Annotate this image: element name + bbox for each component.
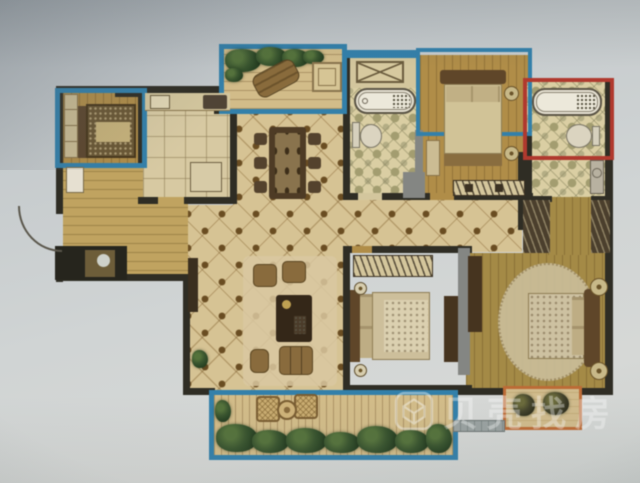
top-balcony-side-table-top: [318, 68, 336, 86]
bottom-balcony-plant: [324, 432, 360, 453]
bedroomTR-dresser-item: [465, 184, 473, 192]
living-tv-console: [188, 258, 198, 312]
master-pouf: [590, 362, 608, 380]
bottom-balcony-plant: [252, 430, 289, 453]
toilet-corner-bowl: [566, 124, 592, 148]
bedroomTR-bedpost: [504, 146, 519, 161]
bedroomTR-foot-bench: [444, 154, 502, 166]
living-coffee-table-tray: [294, 316, 306, 334]
top-balcony-plant: [225, 68, 243, 82]
living-plant: [192, 350, 208, 368]
bottom-balcony-chair: [294, 394, 318, 419]
kitchen-stove: [203, 95, 227, 109]
master-bed-pillows: [572, 297, 584, 355]
kitchen-door-gap: [158, 197, 184, 204]
gray-ledge: [453, 420, 505, 432]
bedroomTR-dresser: [453, 180, 525, 196]
bedroomTL-headboard: [78, 106, 86, 158]
dining-chair: [308, 133, 321, 145]
bedroom-middle-door-gap: [352, 246, 372, 253]
bedroom-middle-dresser: [444, 296, 458, 362]
toilet-middle-tank: [352, 122, 360, 148]
toilet-middle-bowl: [360, 124, 382, 148]
toilet-corner-tank: [592, 126, 600, 146]
bottom-balcony-plant: [426, 424, 452, 453]
bay-window-plant: [543, 392, 569, 415]
living-sofa: [279, 346, 313, 375]
bathroom-door-gap: [358, 193, 382, 200]
bedroomTR-headboard: [440, 70, 506, 84]
bedroomTR-dresser-item: [495, 184, 503, 192]
bay-window-plant: [513, 394, 535, 416]
kitchen-sink: [150, 95, 170, 109]
bedroomTR-door-gap: [430, 193, 454, 200]
bedroom-middle-wardrobe: [353, 255, 433, 277]
bottom-balcony-round-table: [277, 400, 297, 420]
living-armchair: [282, 261, 306, 283]
hall-cabinet: [66, 167, 84, 193]
bedroomTR-bench: [426, 140, 440, 176]
kitchen-fridge: [190, 162, 222, 192]
floor-plan-photo: 贝壳找房: [0, 0, 640, 483]
bedroom-middle-lamp: [354, 282, 367, 295]
bedroom-middle-headboard: [350, 290, 360, 362]
bottom-balcony-plant: [357, 426, 398, 453]
wall-bedroom-middle-left: [343, 250, 350, 392]
bedroomTL-wardrobe: [64, 94, 78, 158]
wall-bedroomTR-bottom-gray-block: [403, 172, 425, 198]
bathroom-top-window: [343, 50, 420, 58]
utility-sink-basin: [592, 168, 602, 178]
bottom-balcony-plant: [286, 428, 327, 453]
bedroomTL-bed-runner: [96, 122, 130, 142]
entry-door-swing-arc: [18, 206, 62, 252]
bathtub-middle-drain: [362, 98, 368, 104]
dining-chair: [308, 181, 321, 193]
living-pouf: [250, 349, 269, 373]
master-wardrobe-right: [591, 200, 610, 253]
bottom-balcony-plant: [395, 430, 429, 453]
washing-machine: [356, 61, 404, 83]
dining-chair: [254, 181, 267, 193]
master-pouf: [590, 278, 608, 296]
dining-table-runner: [275, 133, 300, 193]
wall-kitchen-bottom: [138, 197, 237, 204]
master-wardrobe-left: [523, 200, 550, 253]
bottom-balcony-plant: [215, 400, 231, 422]
floor-plan: 贝壳找房: [0, 0, 640, 483]
entry-porch-knob: [97, 254, 110, 267]
living-armchair: [253, 264, 277, 287]
bedroomTR-pillows: [446, 86, 500, 102]
dining-chair: [254, 133, 267, 145]
master-vestibule-floor: [548, 197, 593, 255]
master-bed-headboard: [584, 289, 600, 367]
dining-chair: [254, 157, 267, 169]
bedroom-middle-pillows: [360, 294, 372, 358]
bedroom-middle-duvet: [384, 300, 428, 352]
bedroom-middle-lamp: [354, 364, 367, 377]
bathtub-middle-jets: [392, 94, 410, 108]
dining-chair: [308, 157, 321, 169]
bedroomTR-bedpost: [504, 86, 519, 101]
master-tv-cabinet: [468, 256, 482, 332]
bathtub-corner-jets: [576, 94, 596, 110]
living-coffee-table-decor: [282, 300, 291, 309]
